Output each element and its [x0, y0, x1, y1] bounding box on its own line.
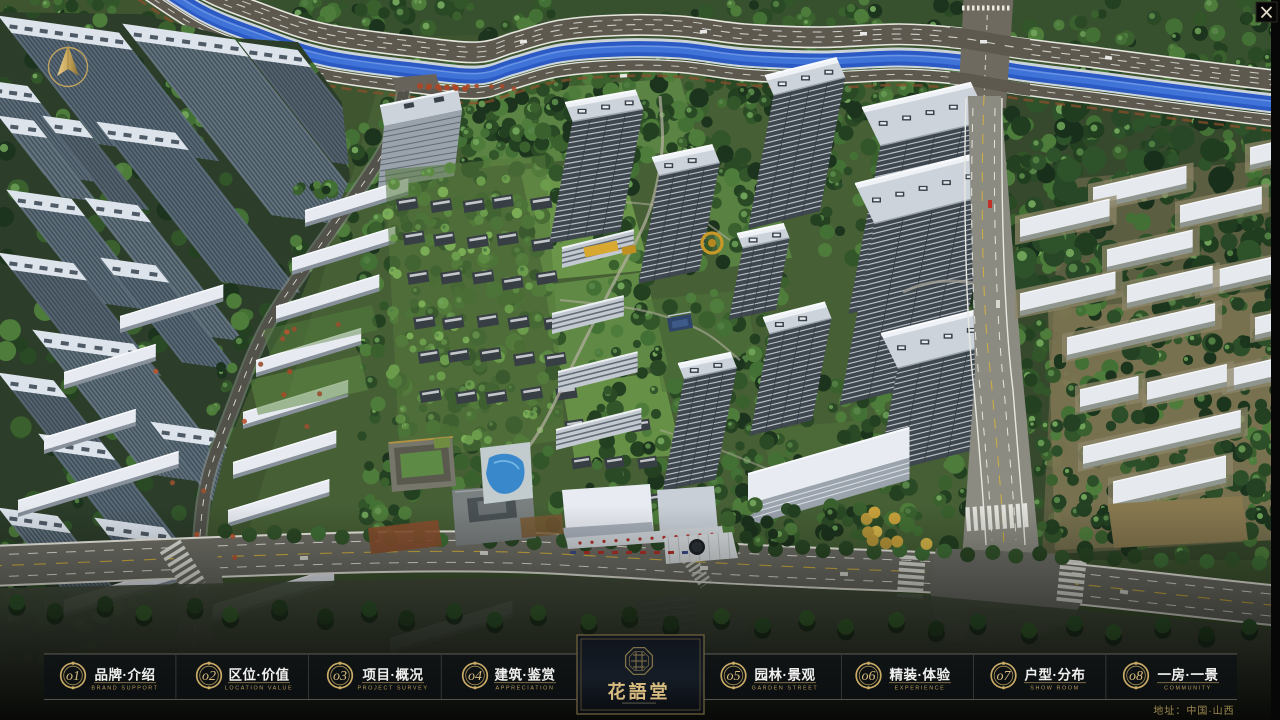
svg-text:地址：中国·山西: 地址：中国·山西 [1153, 704, 1234, 717]
svg-text:GARDEN STREET: GARDEN STREET [752, 686, 819, 692]
svg-text:建筑·鉴赏: 建筑·鉴赏 [494, 667, 556, 683]
svg-text:一房·一景: 一房·一景 [1158, 667, 1219, 683]
svg-text:o2: o2 [202, 669, 216, 684]
svg-text:o5: o5 [727, 669, 741, 684]
svg-text:品牌·介绍: 品牌·介绍 [95, 667, 156, 683]
svg-text:o3: o3 [333, 669, 347, 684]
svg-text:园林·景观: 园林·景观 [755, 667, 816, 683]
svg-text:o8: o8 [1129, 669, 1143, 684]
svg-text:EXPERIENCE: EXPERIENCE [895, 686, 946, 692]
svg-text:o1: o1 [66, 669, 80, 684]
svg-text:项目·概况: 项目·概况 [363, 667, 424, 683]
svg-text:APPRECIATION: APPRECIATION [496, 686, 555, 692]
svg-text:花語堂: 花語堂 [608, 681, 671, 702]
svg-text:户型·分布: 户型·分布 [1025, 667, 1086, 683]
svg-text:PROJECT SURVEY: PROJECT SURVEY [357, 686, 428, 692]
svg-text:精装·体验: 精装·体验 [890, 667, 951, 683]
svg-text:LOCATION VALUE: LOCATION VALUE [225, 686, 293, 692]
svg-text:区位·价值: 区位·价值 [229, 667, 290, 683]
svg-text:BRAND SUPPORT: BRAND SUPPORT [91, 686, 158, 692]
svg-text:o7: o7 [997, 669, 1012, 684]
svg-text:o4: o4 [468, 669, 482, 684]
svg-text:SHOW ROOM: SHOW ROOM [1030, 686, 1079, 692]
svg-text:COMMUNITY: COMMUNITY [1164, 686, 1212, 692]
svg-text:o6: o6 [862, 669, 876, 684]
